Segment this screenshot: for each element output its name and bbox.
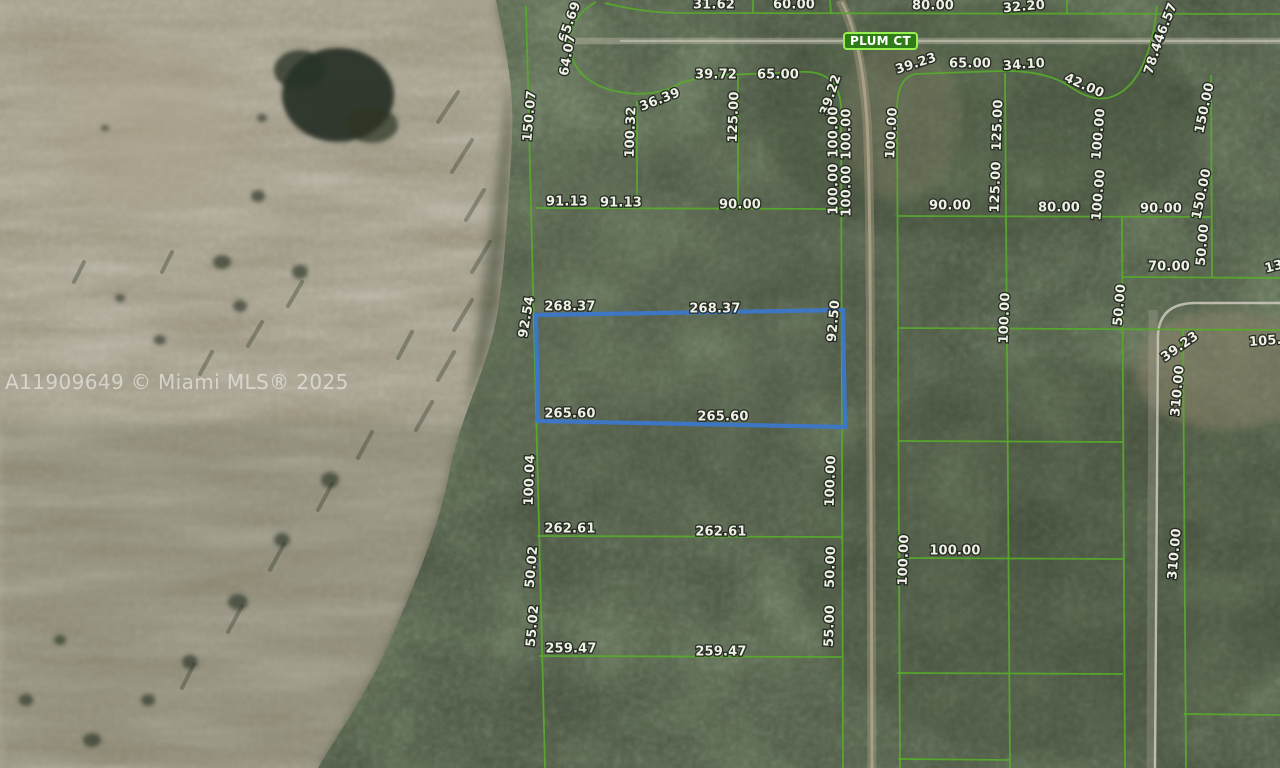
road-line <box>1151 310 1153 768</box>
dimension-label: 100.32 <box>623 106 640 158</box>
dimension-label: 100.00 <box>997 292 1014 344</box>
dimension-label: 100.04 <box>522 454 539 506</box>
street-name-badge: PLUM CT <box>843 32 918 50</box>
dimension-label: 125.00 <box>990 99 1007 151</box>
dimension-label: 34.10 <box>1002 56 1045 74</box>
dimension-label: 268.37 <box>689 302 740 317</box>
aerial-parcel-map: 31.6260.0080.0032.2065.6964.07150.0736.3… <box>0 0 1280 768</box>
dimension-label: 31.62 <box>693 0 735 13</box>
parcel-line <box>898 441 1123 442</box>
dimension-label: 262.61 <box>695 525 746 540</box>
dimension-label: 125.00 <box>726 91 743 143</box>
parcel-line <box>1184 714 1280 715</box>
dimension-label: 91.13 <box>600 196 642 211</box>
dimension-label: 60.00 <box>773 0 815 13</box>
dimension-label: 100.00 <box>840 108 855 159</box>
dimension-label: 262.61 <box>544 522 595 537</box>
dimension-label: 100.00 <box>823 455 840 507</box>
parcel-line <box>898 759 1010 760</box>
dimension-label: 70.00 <box>1148 260 1190 275</box>
dimension-label: 65.00 <box>949 57 991 72</box>
mls-watermark: A11909649 © Miami MLS® 2025 <box>5 370 349 394</box>
dimension-label: 55.00 <box>822 605 838 648</box>
dimension-label: 90.00 <box>1140 202 1182 217</box>
dimension-label: 91.13 <box>546 195 588 210</box>
parcel-line <box>830 0 831 13</box>
dimension-label: 265.60 <box>544 407 595 422</box>
dimension-label: 100.00 <box>929 544 980 559</box>
dimension-label: 90.00 <box>929 199 971 214</box>
dimension-label: 105.0 <box>1248 332 1280 350</box>
dimension-label: 39.72 <box>695 68 737 83</box>
dimension-label: 100.00 <box>883 107 901 159</box>
dimension-label: 90.00 <box>719 198 761 213</box>
dimension-label: 125.00 <box>988 161 1005 213</box>
dimension-label: 268.37 <box>544 300 595 315</box>
dimension-label: 80.00 <box>912 0 954 14</box>
dimension-label: 50.00 <box>823 546 839 589</box>
dimension-label: 100.00 <box>896 534 913 586</box>
dimension-label: 65.00 <box>757 68 799 83</box>
dimension-label: 259.47 <box>545 642 596 657</box>
dimension-label: 80.00 <box>1038 201 1080 216</box>
dimension-label: 259.47 <box>695 645 746 660</box>
dimension-label: 100.00 <box>840 165 855 216</box>
parcel-line <box>1123 277 1280 278</box>
dimension-label: 265.60 <box>697 410 748 425</box>
